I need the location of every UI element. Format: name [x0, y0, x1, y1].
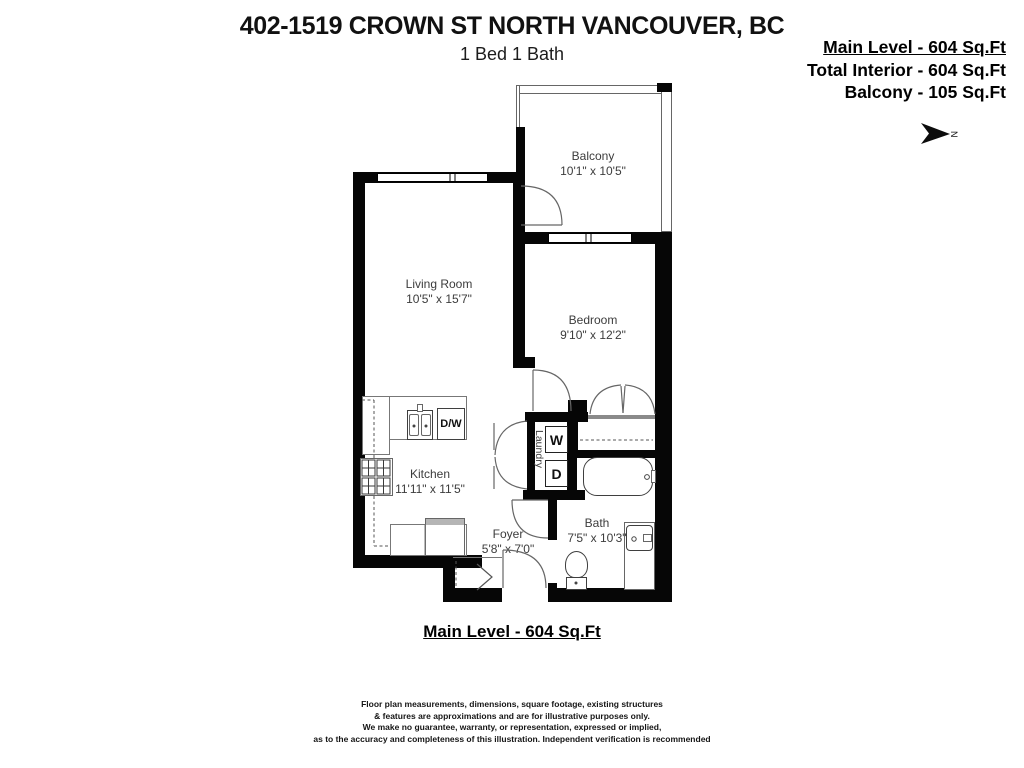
plan-linework: N — [0, 0, 1024, 768]
closet-door-right-arc — [625, 385, 655, 414]
summary-main-level: Main Level - 604 Sq.Ft — [807, 36, 1006, 59]
dishwasher: D/W — [437, 408, 465, 440]
bedroom-dims: 9'10" x 12'2" — [528, 328, 658, 343]
dryer: D — [545, 460, 568, 487]
wall-bottom-left — [443, 588, 502, 602]
balcony-railing-top — [516, 85, 672, 94]
dishwasher-label: D/W — [440, 418, 461, 430]
balcony-dims: 10'1" x 10'5" — [528, 164, 658, 179]
label-bedroom: Bedroom 9'10" x 12'2" — [528, 313, 658, 342]
label-laundry: Laundry — [533, 430, 545, 492]
wall-living-bedroom — [513, 183, 525, 361]
tub-faucet — [651, 470, 656, 483]
disclaimer-line-3: We make no guarantee, warranty, or repre… — [0, 722, 1024, 734]
label-balcony: Balcony 10'1" x 10'5" — [528, 149, 658, 178]
label-foyer: Foyer 5'8" x 7'0" — [443, 527, 573, 556]
balcony-railing-left — [516, 85, 520, 129]
wall-bottom-right — [548, 588, 672, 602]
window-bedroom — [548, 233, 632, 243]
north-arrow-icon — [921, 123, 950, 144]
summary-total-interior: Total Interior - 604 Sq.Ft — [807, 59, 1006, 82]
closet-door-right-leaf — [623, 386, 625, 413]
kitchen-counter-left — [362, 396, 390, 455]
living-dims: 10'5" x 15'7" — [374, 292, 504, 307]
floorplan-page: 402-1519 CROWN ST NORTH VANCOUVER, BC 1 … — [0, 0, 1024, 768]
wall-jog — [513, 357, 535, 368]
bedroom-name: Bedroom — [528, 313, 658, 328]
sink-basin-right — [421, 414, 431, 436]
washer-label: W — [550, 432, 563, 448]
toilet-tank — [566, 577, 587, 590]
wall-right — [655, 232, 672, 602]
laundry-door-upper-arc — [495, 421, 527, 455]
disclaimer-line-1: Floor plan measurements, dimensions, squ… — [0, 699, 1024, 711]
bathtub — [583, 457, 653, 496]
balcony-name: Balcony — [528, 149, 658, 164]
living-name: Living Room — [374, 277, 504, 292]
label-kitchen: Kitchen 11'11" x 11'5" — [365, 467, 495, 496]
area-summary: Main Level - 604 Sq.Ft Total Interior - … — [807, 36, 1006, 104]
foyer-dims: 5'8" x 7'0" — [443, 542, 573, 557]
balcony-railing-right — [661, 85, 672, 232]
bedroom-door-arc — [533, 370, 571, 411]
label-living-room: Living Room 10'5" x 15'7" — [374, 277, 504, 306]
disclaimer-line-4: as to the accuracy and completeness of t… — [0, 734, 1024, 746]
balcony-door-arc — [521, 186, 562, 225]
sink-faucet — [417, 404, 423, 412]
kitchen-dims: 11'11" x 11'5" — [365, 482, 495, 497]
entry-closet-top-line — [453, 557, 502, 558]
wall-balcony-left — [516, 127, 525, 185]
summary-balcony: Balcony - 105 Sq.Ft — [807, 81, 1006, 104]
foyer-name: Foyer — [443, 527, 573, 542]
washer: W — [545, 426, 568, 453]
compass: N — [921, 123, 959, 144]
laundry-door-lower-arc — [495, 457, 527, 489]
window-living — [377, 173, 488, 182]
disclaimer-line-2: & features are approximations and are fo… — [0, 711, 1024, 723]
closet-door-left-leaf — [621, 386, 623, 413]
kitchen-name: Kitchen — [365, 467, 495, 482]
fridge-top-strip — [426, 519, 464, 525]
compass-n-label: N — [949, 131, 959, 138]
wall-left — [353, 172, 365, 568]
disclaimer: Floor plan measurements, dimensions, squ… — [0, 699, 1024, 745]
footer-level-label: Main Level - 604 Sq.Ft — [0, 622, 1024, 642]
closet-front-line — [588, 415, 655, 419]
closet-door-left-arc — [590, 385, 621, 414]
dryer-label: D — [551, 466, 561, 482]
sink-basin-left — [409, 414, 419, 436]
wall-balcony-corner — [657, 83, 672, 92]
